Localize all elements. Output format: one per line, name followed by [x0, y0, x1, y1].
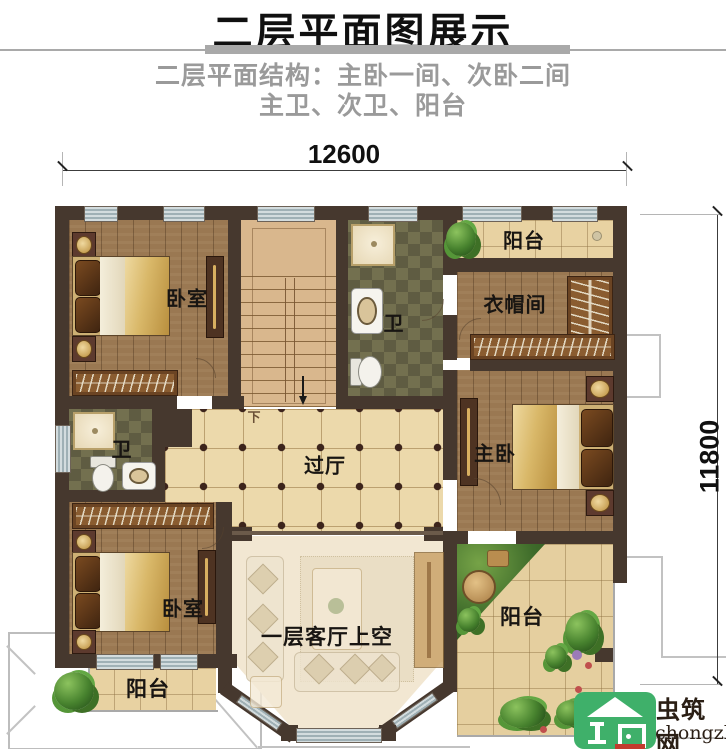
basket — [487, 550, 509, 567]
dimension-ext-line — [640, 214, 720, 215]
window — [552, 206, 598, 222]
window — [296, 728, 382, 743]
room-label-bedroom-top-left: 卧室 — [166, 283, 208, 312]
closet-hangers — [571, 280, 609, 340]
flower — [572, 650, 582, 660]
room-label-master-bedroom: 主卧 — [474, 438, 516, 467]
wall-segment — [336, 206, 348, 409]
dimension-ext-line — [626, 152, 627, 186]
room-stairs — [241, 220, 336, 407]
window — [84, 206, 118, 222]
dimension-ext-line — [62, 152, 63, 186]
plant — [500, 698, 546, 728]
closet-hangers — [474, 338, 611, 356]
dresser — [206, 256, 224, 338]
wall-segment — [613, 206, 627, 583]
sink — [351, 288, 383, 334]
wall-segment — [55, 396, 177, 409]
dimension-height-label: 11800 — [695, 402, 726, 512]
site-logo — [574, 692, 656, 749]
window — [368, 206, 418, 222]
stair-rail — [285, 278, 295, 402]
bed — [512, 404, 614, 490]
nightstand — [72, 630, 96, 654]
wall-segment — [228, 206, 241, 409]
red-tag — [615, 744, 645, 749]
bed — [72, 552, 170, 632]
bed-blanket — [513, 405, 557, 489]
garden-table — [462, 570, 496, 604]
wall-segment — [595, 648, 613, 662]
wall-segment — [443, 531, 468, 544]
dimension-width-line — [62, 170, 627, 171]
roof-outline-line — [659, 334, 661, 398]
room-label-bath-top: 卫 — [384, 308, 405, 337]
plant — [458, 608, 480, 632]
wardrobe — [72, 370, 178, 396]
railing-line — [232, 531, 443, 535]
bed-pillow — [75, 593, 101, 629]
bed-pillow — [581, 449, 613, 487]
bed-sheet — [557, 405, 579, 489]
window — [160, 654, 198, 670]
stairs-arrow — [302, 376, 304, 396]
wall-segment — [516, 531, 613, 544]
logo-house-roof-icon — [587, 697, 643, 717]
bed-sheet — [100, 553, 125, 631]
bed-sheet — [100, 257, 125, 335]
plant — [545, 645, 567, 669]
plant — [446, 222, 476, 256]
stairs-down-label: 下 — [247, 407, 260, 426]
room-label-bedroom-bottom-left: 卧室 — [162, 593, 204, 622]
room-label-cloakroom: 衣帽间 — [484, 289, 547, 318]
wardrobe-hangers — [76, 374, 174, 392]
title-underline-bar — [205, 45, 570, 54]
logo-glyph — [626, 734, 631, 739]
wall-segment — [443, 544, 457, 692]
nightstand — [72, 530, 96, 554]
bed — [72, 256, 170, 336]
window — [96, 654, 154, 670]
window — [462, 206, 522, 222]
bed-pillow — [75, 297, 101, 333]
closet — [470, 334, 615, 360]
wall-segment — [457, 258, 613, 272]
shower — [73, 412, 115, 450]
room-label-hallway: 过厅 — [304, 450, 346, 479]
roof-outline-line — [258, 746, 470, 748]
drain-dot — [592, 231, 602, 241]
wall-segment — [55, 490, 165, 502]
window — [55, 425, 71, 473]
nightstand — [586, 376, 614, 402]
wall-segment — [165, 409, 192, 447]
bed-pillow — [75, 260, 101, 296]
room-label-balcony-top: 阳台 — [503, 225, 545, 254]
balcony-rail — [88, 710, 218, 712]
wall-segment — [216, 502, 232, 668]
room-label-balcony-bottom-right: 阳台 — [500, 601, 544, 631]
nightstand — [72, 232, 96, 258]
logo-glyph — [595, 725, 600, 741]
subtitle-line-2: 主卫、次卫、阳台 — [0, 86, 726, 122]
dimension-ext-line — [640, 684, 720, 685]
flower — [540, 726, 547, 733]
dimension-width-label: 12600 — [244, 139, 444, 170]
nightstand — [586, 490, 614, 516]
bed-pillow — [581, 409, 613, 447]
floor-plan-page: 二层平面图展示 二层平面结构：主卧一间、次卧二间 主卫、次卫、阳台 12600 … — [0, 0, 726, 749]
wall-segment — [336, 396, 457, 409]
room-label-balcony-bottom-left: 阳台 — [126, 673, 170, 703]
wall-segment — [443, 370, 457, 480]
wall-segment — [212, 396, 244, 409]
toilet — [358, 356, 382, 388]
roof-outline-line — [627, 334, 661, 336]
sink — [122, 462, 156, 490]
table-plant — [328, 598, 344, 614]
room-label-bath-left: 卫 — [112, 434, 133, 463]
tv-wall — [414, 552, 444, 668]
plant — [565, 612, 599, 652]
side-table — [250, 676, 282, 708]
bed-blanket — [125, 257, 169, 335]
roof-outline-line — [661, 556, 663, 658]
wall-segment — [443, 315, 457, 360]
wardrobe — [72, 503, 214, 529]
wardrobe-hangers — [76, 507, 210, 525]
site-url: chongzhu.cn — [655, 722, 726, 744]
shower — [351, 224, 395, 266]
logo-glyph — [588, 740, 606, 744]
nightstand — [72, 336, 96, 362]
room-label-living-void: 一层客厅上空 — [261, 621, 393, 651]
plant — [54, 672, 94, 710]
toilet — [92, 464, 114, 492]
flower — [585, 662, 592, 669]
window — [163, 206, 205, 222]
bed-pillow — [75, 556, 101, 592]
roof-outline-line — [627, 396, 661, 398]
stairs-arrow-head — [299, 396, 307, 405]
window — [257, 206, 315, 222]
